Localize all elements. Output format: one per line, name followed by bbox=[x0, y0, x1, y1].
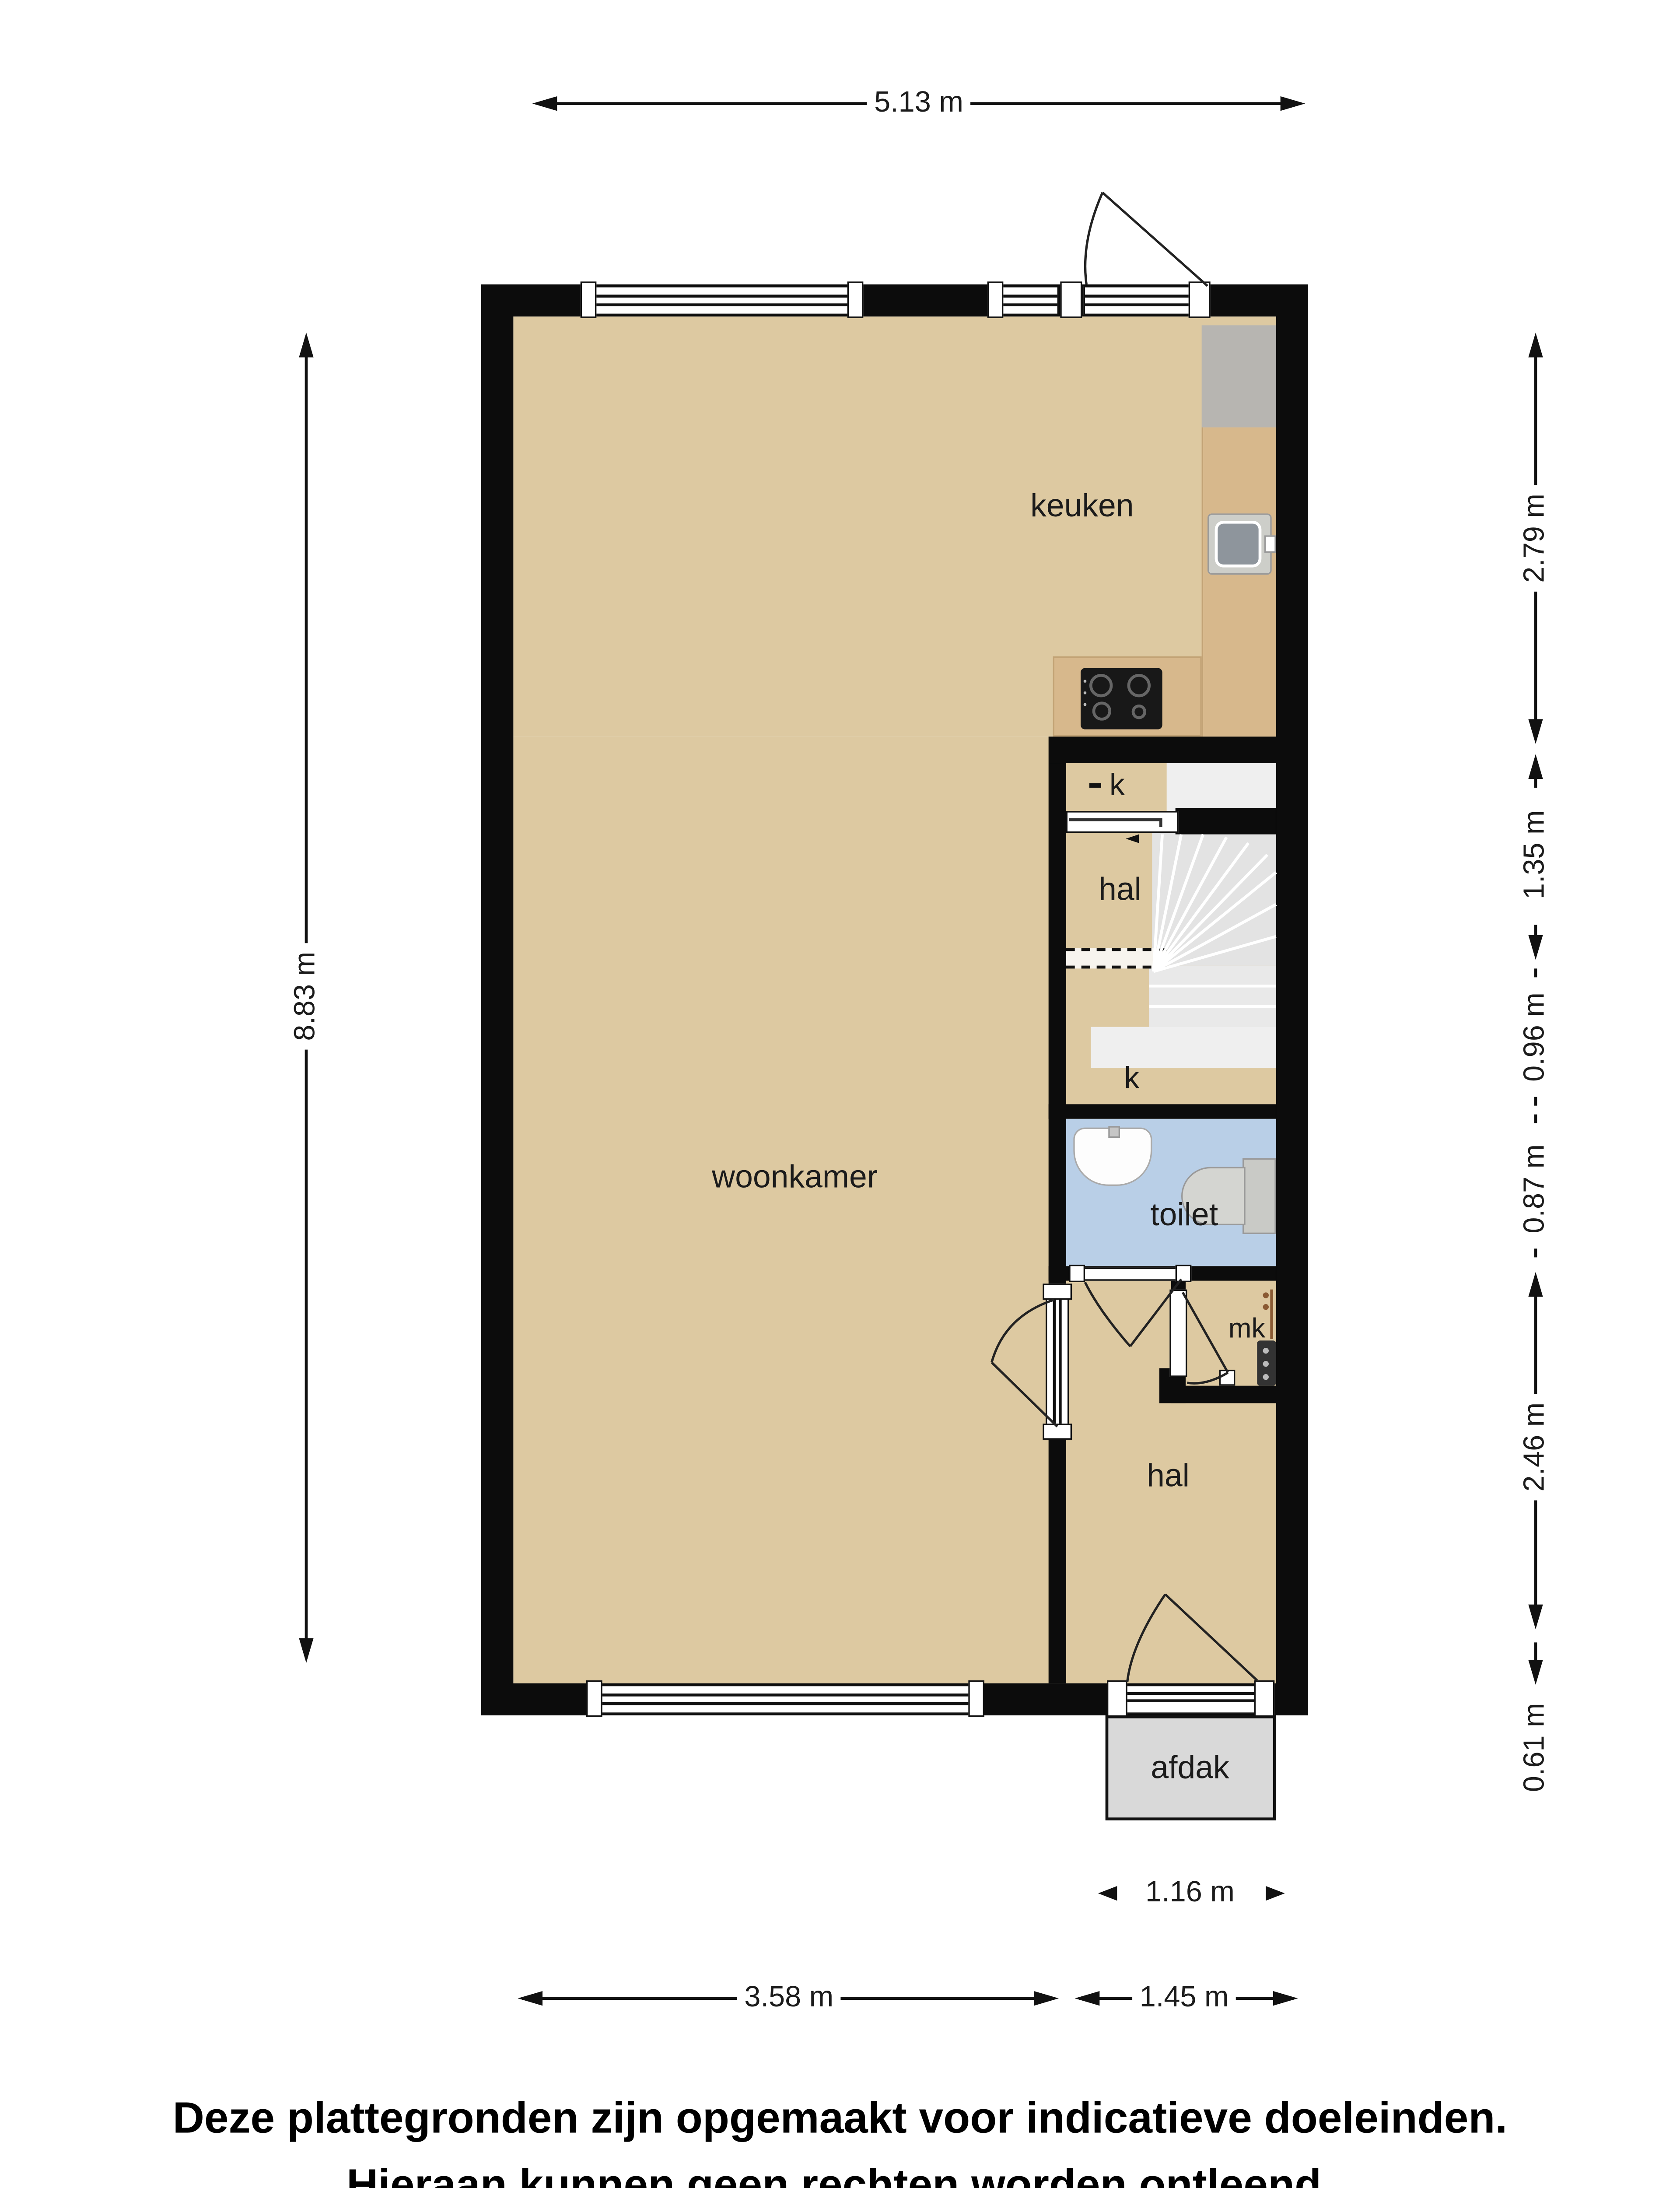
dim-left-label: 8.83 m bbox=[290, 943, 323, 1050]
sink-basin bbox=[1215, 521, 1262, 568]
wall-k-toilet bbox=[1049, 1104, 1276, 1119]
dim-right-label: 1.35 m bbox=[1519, 801, 1553, 908]
disclaimer-line2: Hieraan kunnen geen rechten worden ontle… bbox=[0, 2153, 1680, 2188]
floorplan-canvas: keuken woonkamer k hal k toilet mk hal a… bbox=[0, 0, 1680, 2188]
sliding-door-opening bbox=[1066, 811, 1179, 833]
dim-bottom-right-label: 1.45 m bbox=[1132, 1981, 1236, 2015]
wall-vertical-upper bbox=[1049, 763, 1066, 1295]
meter-cable bbox=[1270, 1290, 1273, 1339]
dim-right-label: 2.79 m bbox=[1519, 485, 1553, 592]
room-label-k-lower: k bbox=[1124, 1062, 1139, 1097]
toilet-icon bbox=[1242, 1158, 1276, 1234]
door-jamb bbox=[1219, 1370, 1235, 1386]
room-label-afdak: afdak bbox=[1151, 1749, 1229, 1787]
dim-right-label: 0.61 m bbox=[1519, 1694, 1553, 1801]
wall-sliding-stub bbox=[1176, 808, 1276, 835]
wall-keuken-bottom bbox=[1049, 736, 1308, 763]
stove-icon bbox=[1081, 668, 1162, 729]
window-jamb bbox=[968, 1680, 984, 1717]
woonkamer-floor bbox=[513, 736, 1066, 1683]
mk-door-opening bbox=[1169, 1290, 1187, 1377]
wall-vertical-lower bbox=[1049, 1430, 1066, 1683]
window-jamb bbox=[586, 1680, 602, 1717]
entrance-door-opening bbox=[1126, 1685, 1257, 1714]
window-jamb bbox=[847, 281, 864, 318]
woonkamer-hal-door-opening bbox=[1046, 1295, 1069, 1430]
door-jamb bbox=[1043, 1283, 1072, 1300]
wall-left bbox=[481, 284, 513, 1715]
dim-right-label: 2.46 m bbox=[1519, 1394, 1553, 1501]
toilet-door-opening bbox=[1081, 1268, 1190, 1281]
stairs-treads bbox=[1149, 966, 1276, 1027]
stair-mark-dash bbox=[1089, 783, 1101, 787]
window-jamb bbox=[581, 281, 597, 318]
stair-direction-arrow-icon bbox=[1126, 835, 1139, 843]
room-label-woonkamer: woonkamer bbox=[712, 1158, 878, 1196]
room-label-toilet: toilet bbox=[1150, 1196, 1218, 1234]
window-icon-top-small bbox=[1001, 286, 1059, 315]
door-jamb bbox=[1043, 1424, 1072, 1440]
room-label-hal-upper: hal bbox=[1099, 871, 1141, 909]
dim-right-label: 0.87 m bbox=[1519, 1136, 1553, 1242]
stairs-icon bbox=[1167, 763, 1276, 811]
window-jamb bbox=[987, 281, 1004, 318]
dim-right-label: 0.96 m bbox=[1519, 984, 1553, 1090]
kitchen-counter bbox=[1202, 428, 1276, 737]
door-jamb bbox=[1060, 281, 1082, 318]
meter-cable-dot bbox=[1263, 1292, 1269, 1298]
window-icon-top-large bbox=[594, 286, 850, 315]
electric-meter-icon bbox=[1257, 1340, 1276, 1385]
door-jamb bbox=[1176, 1265, 1192, 1282]
front-door-opening bbox=[1084, 286, 1192, 315]
wall-right bbox=[1276, 284, 1308, 1715]
stairs-landing bbox=[1091, 1027, 1276, 1068]
meter-cable-dot bbox=[1263, 1304, 1269, 1310]
dim-bottom-door-label: 1.16 m bbox=[1138, 1876, 1242, 1910]
window-icon-bottom bbox=[601, 1685, 971, 1714]
room-label-keuken: keuken bbox=[1030, 487, 1134, 525]
floorplan-page: keuken woonkamer k hal k toilet mk hal a… bbox=[0, 0, 1680, 2188]
room-label-k-upper: k bbox=[1109, 769, 1125, 804]
disclaimer: Deze plattegronden zijn opgemaakt voor i… bbox=[0, 2086, 1680, 2188]
disclaimer-line1: Deze plattegronden zijn opgemaakt voor i… bbox=[0, 2086, 1680, 2153]
door-jamb bbox=[1069, 1265, 1085, 1282]
kitchen-sink-icon bbox=[1207, 513, 1272, 575]
stairs-winders bbox=[1152, 831, 1276, 966]
door-jamb bbox=[1107, 1680, 1127, 1717]
kitchen-worktop bbox=[1202, 325, 1276, 427]
dim-bottom-left-label: 3.58 m bbox=[737, 1981, 841, 2015]
dim-top-label: 5.13 m bbox=[867, 87, 970, 120]
wall-mk-bottom bbox=[1171, 1386, 1308, 1403]
dashed-opening bbox=[1066, 948, 1167, 969]
room-label-hal-lower: hal bbox=[1147, 1457, 1190, 1495]
door-jamb bbox=[1189, 281, 1211, 318]
door-jamb bbox=[1254, 1680, 1275, 1717]
sink-faucet bbox=[1264, 535, 1276, 553]
room-label-mk: mk bbox=[1228, 1314, 1265, 1346]
washbasin-faucet bbox=[1108, 1126, 1120, 1138]
